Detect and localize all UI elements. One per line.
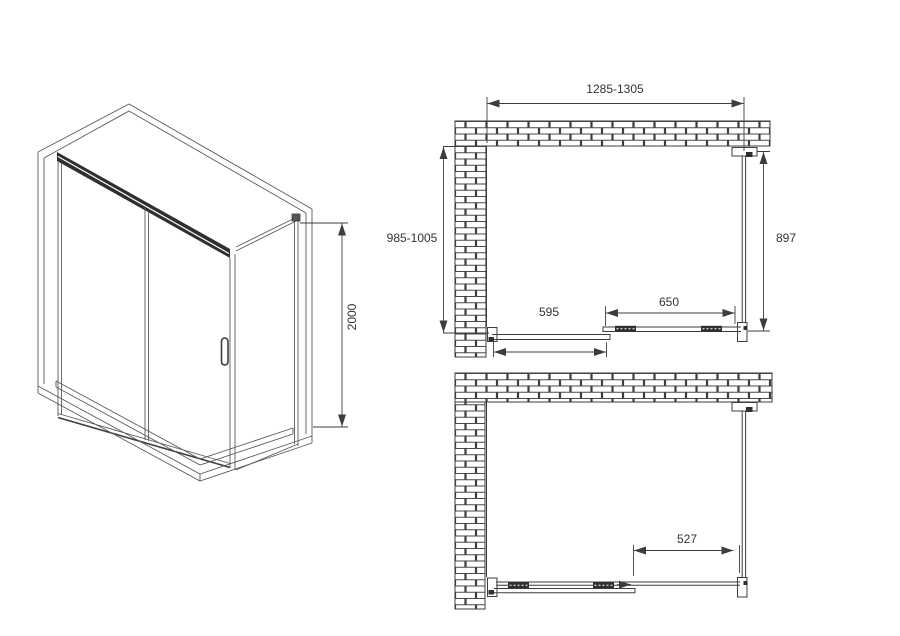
sliding-panel-lines [494, 588, 635, 593]
drawing-svg: 2000 1285-1 [0, 0, 900, 636]
fixed-panel-closed [492, 334, 610, 340]
dimension-side-panel-extension-lines [748, 152, 770, 332]
perspective-view: 2000 [38, 104, 359, 481]
side-panel-glass [742, 411, 745, 577]
dimension-height: 2000 [300, 223, 359, 427]
dimension-side-panel-label: 897 [776, 231, 796, 245]
corner-profile-clamp [744, 581, 748, 585]
wall-profile-clamp [746, 152, 753, 157]
dimension-side-panel: 897 [748, 152, 796, 332]
dimension-door-opening: 527 [634, 532, 740, 576]
door-handle [222, 338, 229, 365]
dimension-opening-label: 527 [677, 532, 697, 546]
dimension-height-extension-lines [300, 223, 348, 427]
corner-profile-clamp [744, 326, 748, 330]
dimension-sliding-panel-label: 650 [659, 295, 679, 309]
dimension-fixed-panel-extension-lines [494, 342, 607, 357]
dimension-sliding-panel: 650 [606, 295, 736, 326]
side-panel-edges [236, 217, 298, 471]
shower-tray [38, 381, 312, 481]
wall-profile-top-right [732, 403, 757, 413]
dimension-sliding-panel-extension-lines [606, 306, 736, 326]
brick-wall-left [455, 146, 486, 357]
brick-wall-top [455, 373, 772, 402]
door-top-rail-highlight [58, 157, 229, 254]
wall-profile-body [732, 403, 757, 412]
dimension-width-label: 1285-1305 [586, 82, 644, 96]
brick-wall-left [455, 402, 485, 609]
corner-profile-body [738, 578, 748, 598]
wall-profile-top-right [732, 148, 757, 158]
dimension-depth-label: 985-1005 [387, 231, 438, 245]
wall-profile-body [732, 148, 757, 157]
plan-view-door-closed: 1285-1305 985-1005 897 650 595 [387, 82, 797, 357]
technical-drawing-canvas: 2000 1285-1 [0, 0, 900, 636]
door-bottom-rail [58, 418, 230, 468]
dimension-fixed-panel: 595 [494, 305, 607, 357]
dimension-fixed-panel-label: 595 [539, 305, 559, 319]
wall-profile-left [488, 578, 498, 597]
sliding-panel-open [494, 582, 635, 593]
dimension-opening-extension-lines [634, 545, 740, 576]
side-panel-wall-anchor [292, 214, 300, 221]
room-walls-outline [38, 104, 312, 436]
brick-wall-top [455, 121, 770, 146]
plan-view-door-open: 527 [455, 373, 772, 609]
wall-profile-clamp [489, 590, 495, 595]
sliding-panel-closed [603, 326, 741, 332]
wall-profile-clamp [489, 337, 495, 342]
corner-profile-bottom-right [738, 578, 748, 598]
door-bottom-edge [58, 414, 230, 464]
dimension-height-label: 2000 [345, 303, 359, 330]
side-panel-glass [742, 157, 745, 324]
wall-profile-clamp [746, 407, 753, 412]
